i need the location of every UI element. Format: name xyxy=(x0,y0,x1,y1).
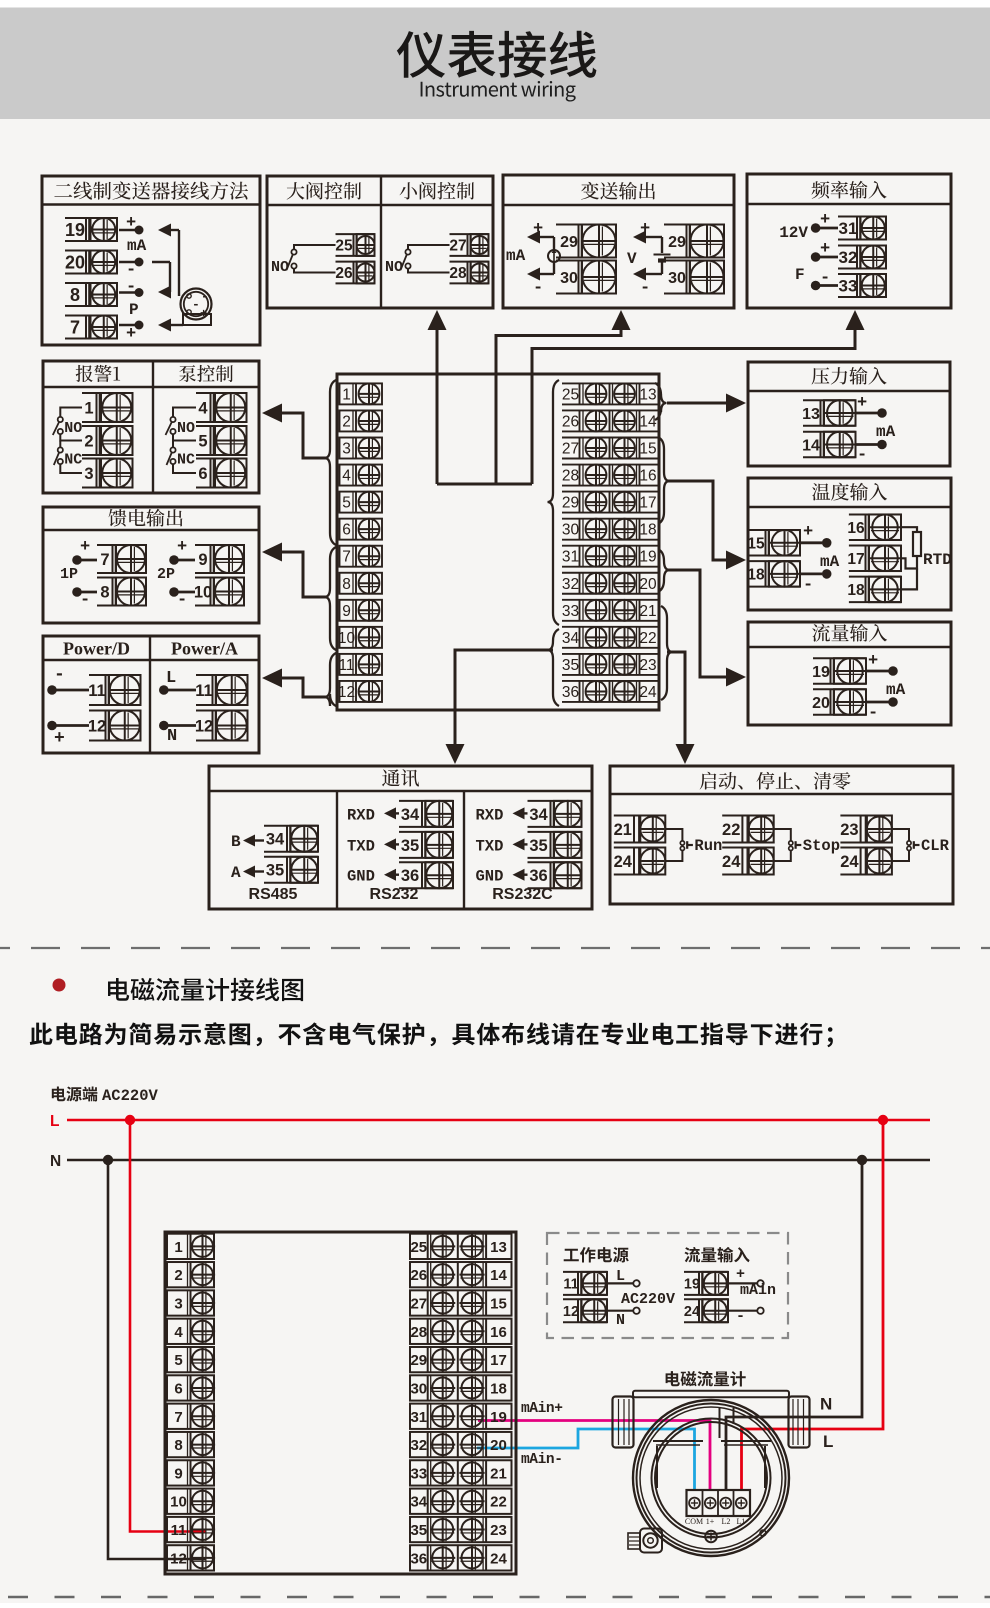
svg-text:RS485: RS485 xyxy=(249,886,298,903)
svg-text:8: 8 xyxy=(70,285,80,305)
svg-text:1: 1 xyxy=(84,399,93,417)
svg-text:31: 31 xyxy=(410,1409,427,1426)
svg-text:2P: 2P xyxy=(157,566,175,583)
svg-text:19: 19 xyxy=(812,664,830,681)
svg-text:CLR: CLR xyxy=(921,837,950,855)
svg-text:10: 10 xyxy=(338,630,356,647)
svg-text:19: 19 xyxy=(65,220,85,240)
svg-text:NO: NO xyxy=(271,259,289,276)
svg-text:NO: NO xyxy=(64,420,82,437)
svg-text:Power/D: Power/D xyxy=(63,639,130,659)
svg-text:7: 7 xyxy=(174,1409,182,1426)
svg-text:21: 21 xyxy=(639,603,656,620)
svg-text:-: - xyxy=(192,297,200,312)
svg-text:+: + xyxy=(80,538,90,557)
svg-text:Run: Run xyxy=(694,837,722,855)
svg-text:10: 10 xyxy=(194,583,212,601)
svg-text:RS232: RS232 xyxy=(370,886,419,903)
svg-text:19: 19 xyxy=(639,549,656,566)
svg-text:17: 17 xyxy=(639,495,656,512)
svg-text:36: 36 xyxy=(410,1550,427,1567)
svg-text:34: 34 xyxy=(562,630,580,647)
svg-text:30: 30 xyxy=(560,270,578,287)
svg-text:Stop: Stop xyxy=(803,837,840,855)
svg-text:34: 34 xyxy=(529,806,548,824)
svg-text:18: 18 xyxy=(847,582,865,599)
svg-text:28: 28 xyxy=(410,1324,427,1341)
svg-text:28: 28 xyxy=(449,265,467,282)
svg-text:9: 9 xyxy=(174,1465,182,1482)
svg-text:27: 27 xyxy=(562,441,579,458)
svg-text:11: 11 xyxy=(195,682,212,700)
svg-text:N: N xyxy=(50,1153,61,1170)
svg-text:27: 27 xyxy=(449,238,466,255)
svg-text:-: - xyxy=(177,591,187,610)
svg-text:F: F xyxy=(795,266,805,284)
svg-text:7: 7 xyxy=(342,549,351,566)
svg-text:+: + xyxy=(736,1266,745,1283)
svg-text:24: 24 xyxy=(614,853,633,871)
svg-text:27: 27 xyxy=(410,1295,427,1312)
svg-text:A: A xyxy=(231,864,241,882)
svg-text:N: N xyxy=(616,1312,625,1329)
svg-text:mA: mA xyxy=(506,247,526,265)
svg-text:1: 1 xyxy=(342,386,351,403)
svg-text:34: 34 xyxy=(266,831,285,849)
svg-text:-: - xyxy=(533,279,543,298)
svg-text:33: 33 xyxy=(839,277,858,296)
svg-text:31: 31 xyxy=(562,549,579,566)
svg-text:24: 24 xyxy=(639,684,657,701)
svg-text:25: 25 xyxy=(410,1239,427,1256)
svg-text:12: 12 xyxy=(170,1550,187,1567)
svg-text:13: 13 xyxy=(490,1239,507,1256)
svg-text:23: 23 xyxy=(840,821,858,839)
svg-text:20: 20 xyxy=(490,1437,507,1454)
svg-text:N: N xyxy=(167,727,177,746)
svg-text:3: 3 xyxy=(342,441,351,458)
svg-text:24: 24 xyxy=(490,1550,507,1567)
svg-text:35: 35 xyxy=(529,837,547,855)
svg-text:20: 20 xyxy=(65,252,85,272)
svg-text:GND: GND xyxy=(347,868,375,886)
svg-text:V: V xyxy=(627,250,637,268)
svg-text:mA: mA xyxy=(820,553,840,571)
svg-text:16: 16 xyxy=(639,468,656,485)
svg-text:17: 17 xyxy=(847,551,864,568)
svg-text:35: 35 xyxy=(410,1522,427,1539)
svg-text:35: 35 xyxy=(266,862,284,880)
svg-text:1P: 1P xyxy=(60,566,78,583)
svg-text:+: + xyxy=(177,538,187,557)
svg-text:11: 11 xyxy=(88,682,105,700)
svg-text:6: 6 xyxy=(198,465,207,483)
svg-text:19: 19 xyxy=(684,1277,700,1293)
svg-text:26: 26 xyxy=(335,265,353,282)
svg-text:AC220V: AC220V xyxy=(621,1291,675,1308)
svg-text:12: 12 xyxy=(563,1304,579,1320)
svg-text:7: 7 xyxy=(70,317,80,337)
svg-text:15: 15 xyxy=(490,1295,507,1312)
svg-text:22: 22 xyxy=(722,821,740,839)
svg-text:14: 14 xyxy=(639,413,657,430)
svg-text:33: 33 xyxy=(562,603,579,620)
svg-text:15: 15 xyxy=(747,535,765,552)
svg-text:RXD: RXD xyxy=(476,806,504,824)
svg-text:L: L xyxy=(50,1113,59,1130)
svg-text:33: 33 xyxy=(410,1465,427,1482)
svg-text:L: L xyxy=(823,1432,833,1451)
svg-text:B: B xyxy=(231,833,241,851)
svg-text:30: 30 xyxy=(668,270,686,287)
svg-text:20: 20 xyxy=(639,576,657,593)
svg-text:+: + xyxy=(126,325,136,344)
svg-text:30: 30 xyxy=(410,1380,427,1397)
svg-text:29: 29 xyxy=(668,234,686,251)
svg-text:34: 34 xyxy=(401,806,420,824)
svg-text:11: 11 xyxy=(171,1522,187,1539)
svg-text:-: - xyxy=(80,591,90,610)
svg-text:RS232C: RS232C xyxy=(492,886,553,903)
svg-text:12: 12 xyxy=(88,717,106,735)
svg-text:mAin-: mAin- xyxy=(521,1452,563,1468)
svg-text:26: 26 xyxy=(410,1267,427,1284)
svg-text:NO: NO xyxy=(177,420,195,437)
svg-text:32: 32 xyxy=(410,1437,427,1454)
svg-text:4: 4 xyxy=(198,399,208,417)
svg-text:9: 9 xyxy=(198,551,207,569)
svg-text:32: 32 xyxy=(839,248,858,267)
svg-text:8: 8 xyxy=(342,576,351,593)
svg-text:COM: COM xyxy=(685,1517,703,1526)
svg-text:NC: NC xyxy=(177,452,195,469)
svg-text:N: N xyxy=(820,1395,832,1414)
svg-text:+: + xyxy=(868,652,878,671)
svg-text:+: + xyxy=(54,729,65,749)
svg-text:18: 18 xyxy=(490,1380,507,1397)
svg-text:18: 18 xyxy=(639,522,656,539)
svg-text:7: 7 xyxy=(100,551,109,569)
svg-text:-: - xyxy=(803,576,813,595)
svg-text:19: 19 xyxy=(490,1409,507,1426)
svg-text:24: 24 xyxy=(722,853,741,871)
svg-text:14: 14 xyxy=(490,1267,507,1284)
svg-text:Power/A: Power/A xyxy=(171,639,238,659)
svg-text:13: 13 xyxy=(802,406,820,423)
svg-text:10: 10 xyxy=(170,1494,187,1511)
svg-text:30: 30 xyxy=(562,522,580,539)
svg-text:25: 25 xyxy=(335,238,353,255)
svg-text:6: 6 xyxy=(174,1380,182,1397)
svg-text:23: 23 xyxy=(639,657,656,674)
svg-text:2: 2 xyxy=(84,432,93,450)
svg-text:12: 12 xyxy=(195,717,213,735)
svg-text:TXD: TXD xyxy=(347,837,375,855)
svg-text:AC220V: AC220V xyxy=(102,1087,159,1105)
svg-text:11: 11 xyxy=(338,657,354,674)
svg-text:5: 5 xyxy=(342,495,351,512)
svg-text:5: 5 xyxy=(198,432,207,450)
svg-text:22: 22 xyxy=(639,630,656,647)
svg-text:-: - xyxy=(126,278,136,297)
svg-text:21: 21 xyxy=(614,821,632,839)
svg-text:-: - xyxy=(54,665,65,685)
svg-text:1: 1 xyxy=(174,1239,182,1256)
svg-text:9: 9 xyxy=(342,603,351,620)
svg-text:13: 13 xyxy=(639,386,656,403)
svg-text:8: 8 xyxy=(174,1437,182,1454)
svg-text:34: 34 xyxy=(410,1494,427,1511)
svg-text:-: - xyxy=(868,704,878,723)
svg-text:25: 25 xyxy=(562,386,579,403)
svg-text:NC: NC xyxy=(64,452,82,469)
svg-text:32: 32 xyxy=(562,576,579,593)
svg-text:-: - xyxy=(201,289,209,304)
svg-text:RTD: RTD xyxy=(923,551,952,569)
svg-text:GND: GND xyxy=(476,868,504,886)
svg-text:24: 24 xyxy=(840,853,859,871)
svg-text:14: 14 xyxy=(802,437,820,454)
svg-text:17: 17 xyxy=(490,1352,507,1369)
svg-text:16: 16 xyxy=(847,520,865,537)
svg-text:18: 18 xyxy=(747,566,765,583)
svg-text:29: 29 xyxy=(410,1352,427,1369)
svg-text:29: 29 xyxy=(562,495,579,512)
svg-text:TXD: TXD xyxy=(476,837,504,855)
svg-text:36: 36 xyxy=(401,867,419,885)
svg-text:31: 31 xyxy=(839,219,858,238)
svg-text:15: 15 xyxy=(639,441,656,458)
svg-text:2: 2 xyxy=(174,1267,182,1284)
svg-text:2: 2 xyxy=(342,413,351,430)
svg-text:11: 11 xyxy=(563,1277,578,1293)
svg-text:3: 3 xyxy=(174,1295,182,1312)
svg-text:4: 4 xyxy=(174,1324,183,1341)
svg-text:mA: mA xyxy=(876,423,896,441)
svg-text:36: 36 xyxy=(529,867,547,885)
svg-text:+: + xyxy=(857,394,867,413)
svg-text:L: L xyxy=(166,669,176,688)
svg-text:+: + xyxy=(803,523,813,542)
svg-text:mA: mA xyxy=(127,237,147,255)
svg-text:12V: 12V xyxy=(779,224,808,242)
svg-text:28: 28 xyxy=(562,468,579,485)
svg-text:L2: L2 xyxy=(722,1517,731,1526)
svg-text:3: 3 xyxy=(84,465,93,483)
svg-text:L1: L1 xyxy=(737,1517,746,1526)
svg-text:mAin+: mAin+ xyxy=(521,1401,563,1417)
svg-text:6: 6 xyxy=(342,522,351,539)
svg-text:20: 20 xyxy=(812,695,830,712)
svg-text:NO: NO xyxy=(385,259,403,276)
svg-text:8: 8 xyxy=(100,583,109,601)
svg-text:-: - xyxy=(640,279,650,298)
svg-text:16: 16 xyxy=(490,1324,507,1341)
svg-text:24: 24 xyxy=(684,1304,700,1320)
svg-text:22: 22 xyxy=(490,1494,507,1511)
svg-text:35: 35 xyxy=(401,837,419,855)
svg-text:mA: mA xyxy=(886,681,906,699)
svg-text:-: - xyxy=(857,446,867,465)
svg-text:12: 12 xyxy=(338,684,355,701)
svg-text:26: 26 xyxy=(562,413,579,430)
svg-text:29: 29 xyxy=(560,234,578,251)
svg-text:5: 5 xyxy=(174,1352,182,1369)
svg-text:36: 36 xyxy=(562,684,579,701)
svg-text:4: 4 xyxy=(342,468,351,485)
svg-text:RXD: RXD xyxy=(347,806,375,824)
svg-text:1+: 1+ xyxy=(706,1517,715,1526)
svg-text:P: P xyxy=(129,301,139,319)
svg-text:35: 35 xyxy=(562,657,579,674)
svg-text:23: 23 xyxy=(490,1522,507,1539)
svg-text:21: 21 xyxy=(490,1465,507,1482)
